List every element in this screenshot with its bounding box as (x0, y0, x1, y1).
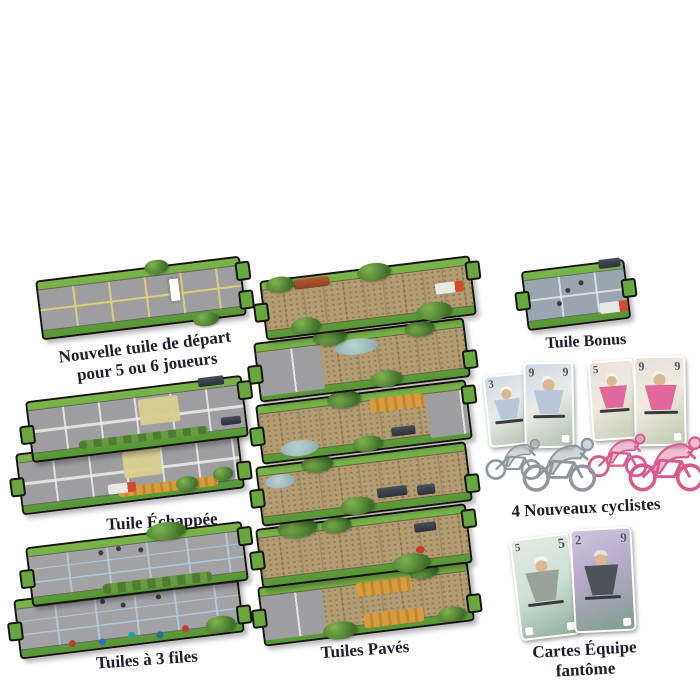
car (598, 257, 621, 269)
caption-bonus: Tuile Bonus (528, 330, 645, 355)
card-value: 5 (514, 542, 521, 555)
puzzle-tab (464, 473, 481, 494)
asphalt-segment (260, 589, 327, 640)
components-sheet: Nouvelle tuile de départ pour 5 ou 6 jou… (0, 0, 700, 700)
puzzle-tab (620, 278, 637, 299)
puzzle-tab (251, 608, 268, 629)
card-art: 5 5 (511, 535, 579, 639)
bush (175, 475, 199, 493)
puzzle-tab (249, 488, 266, 509)
puzzle-tab (247, 364, 264, 385)
spectator-dot (182, 625, 190, 633)
spectator-dot (99, 638, 107, 646)
puzzle-tab (236, 526, 253, 547)
ghost-card-2: 2 9 (569, 526, 636, 633)
puzzle-tab (466, 593, 483, 614)
puzzle-tab (249, 550, 266, 571)
puzzle-tab (460, 508, 477, 529)
yellow-lane-patch (122, 448, 163, 478)
bonus-tile (521, 259, 632, 331)
card-value: 5 (592, 364, 598, 376)
puzzle-tab (9, 477, 26, 498)
yellow-lane-patch (138, 395, 181, 426)
white-cyclist-figure-large (518, 428, 602, 498)
puzzle-tab (234, 261, 251, 282)
road-surface (524, 268, 628, 322)
puzzle-tab (514, 291, 531, 312)
card-value: 9 (562, 365, 568, 380)
puzzle-tab (462, 349, 479, 370)
puzzle-tab (253, 302, 270, 323)
asphalt-segment (256, 345, 325, 396)
spectator-dot (156, 631, 164, 639)
card-value: 5 (557, 536, 566, 553)
puzzle-tab (460, 384, 477, 405)
puzzle-tab (19, 569, 36, 590)
card-value: 9 (674, 359, 680, 374)
pink-cyclist-figure-large (624, 426, 700, 498)
puzzle-tab (236, 460, 253, 481)
puzzle-tab (7, 621, 24, 642)
card-value: 9 (638, 359, 644, 374)
spectator-dot (128, 631, 136, 639)
card-value: 3 (488, 378, 495, 391)
spectator-dot (69, 640, 77, 648)
truck (599, 300, 628, 314)
card-value: 2 (574, 532, 581, 548)
van (197, 375, 224, 387)
puzzle-tab (464, 260, 481, 281)
card-art: 2 9 (571, 529, 634, 632)
card-value: 9 (528, 365, 534, 380)
tree (192, 311, 220, 328)
puzzle-tab (249, 426, 266, 447)
card-value: 9 (620, 530, 627, 546)
puzzle-tab (19, 425, 36, 446)
puzzle-tab (236, 604, 253, 625)
caption-ghost-cards: Cartes Équipe fantôme (499, 636, 671, 685)
